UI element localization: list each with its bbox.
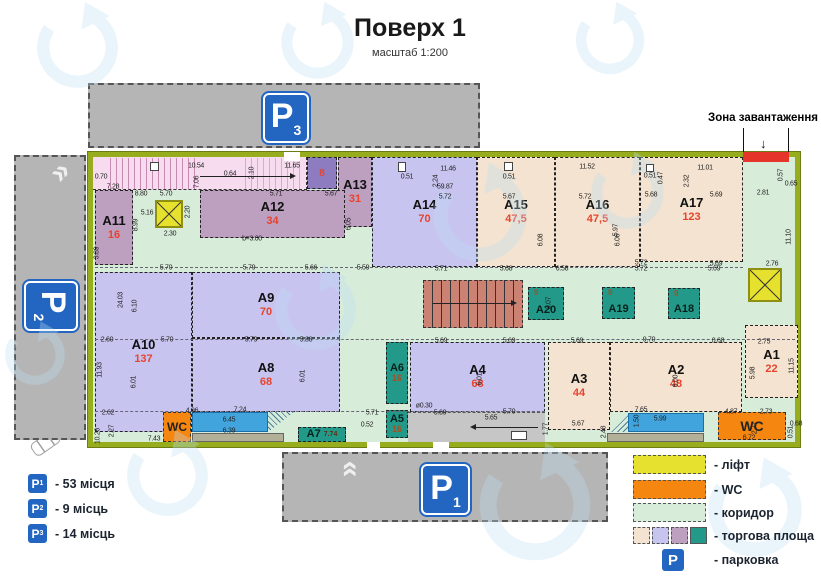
unit-a9: A970: [192, 272, 340, 338]
walkway-left: [192, 433, 284, 442]
dimension-label: 2.73: [760, 409, 772, 416]
unit-a11: A1116: [95, 190, 133, 265]
unit-a5: A516: [386, 410, 408, 438]
unit-a10: A10137: [95, 272, 192, 432]
dimension-label: 2.81: [757, 190, 769, 197]
unit-a18: 9A18: [668, 288, 700, 319]
legend-label-wc: - WC: [714, 483, 742, 497]
dimension-label: 7.43: [148, 436, 160, 443]
dimension-label: 3.07: [546, 297, 553, 309]
wc-left: WC: [163, 412, 191, 442]
dimension-label: 6.05: [346, 218, 353, 230]
dimension-label: 5.71: [366, 410, 378, 417]
dimension-label: 7.65: [635, 407, 647, 414]
scale-label: масштаб 1:200: [250, 47, 570, 59]
dimension-label: 6.45: [223, 417, 235, 424]
dimension-label: 4.96: [186, 408, 198, 415]
stairs-arrow: [433, 303, 511, 304]
dimension-label: 3.89: [94, 247, 101, 259]
dimension-label: 7.24: [234, 407, 246, 414]
unit-a6: A616: [386, 342, 408, 404]
dimension-label: 0.51: [401, 174, 413, 181]
dimension-label: 6.10: [132, 300, 139, 312]
dimension-label: 8.80: [135, 191, 147, 198]
dimension-label: 10.54: [188, 163, 204, 170]
wall-gap: [367, 442, 380, 450]
legend-swatch-retail-mauve: [671, 527, 688, 544]
dimension-label: 2.27: [109, 425, 116, 437]
legend-parking-icon: P: [662, 549, 684, 571]
legend-label-retail: - торгова площа: [714, 529, 814, 543]
p3-legend-icon: P3: [28, 524, 47, 543]
p2-legend-icon: P2: [28, 499, 47, 518]
dimension-label: 5.70: [161, 337, 173, 344]
dimension-label: 8.99: [133, 219, 140, 231]
dimension-label: 5.68: [500, 266, 512, 273]
dimension-label: 5.71: [435, 266, 447, 273]
dimension-label: 5.79: [243, 265, 255, 272]
loading-zone-guide: [743, 128, 744, 152]
dimension-label: 5.72: [579, 194, 591, 201]
dimension-label: 0.51: [788, 426, 795, 438]
dimension-label: 2.62: [102, 410, 114, 417]
wall-gap: [433, 442, 449, 450]
watermark-logo-icon: [30, 0, 125, 95]
dimension-label: 0.57: [778, 169, 785, 181]
dimension-label: 4.87: [725, 409, 737, 416]
arrow-head: [290, 173, 296, 179]
legend-swatch-retail-beige: [633, 527, 650, 544]
p1-legend-icon: P1: [28, 474, 47, 493]
legend-swatch-retail-lavender: [652, 527, 669, 544]
dimension-label: 2.20: [185, 206, 192, 218]
dimension-label: 5.69: [710, 192, 722, 199]
dimension-label: 2.48: [601, 426, 608, 438]
legend-label-corridor: - коридор: [714, 506, 774, 520]
legend-parking-p1: P1 - 53 місця: [28, 474, 115, 493]
p1-sign-icon: P1: [421, 464, 470, 515]
arrow-head: [470, 424, 476, 430]
dimension-label: 5.69: [503, 338, 515, 345]
dimension-label: 5.97: [613, 224, 620, 236]
legend-parking-p2: P2 - 9 місць: [28, 499, 108, 518]
dimension-label: 6.72: [743, 435, 755, 442]
dimension-label: 0.51: [503, 174, 515, 181]
door-mark: [398, 162, 406, 172]
down-arrow-icon: ↓: [760, 136, 767, 151]
dimension-label: 11.46: [440, 166, 456, 173]
dimension-label: 7.28: [107, 184, 119, 191]
dimension-label: 0.68: [712, 338, 724, 345]
dimension-label: 6.01: [300, 370, 307, 382]
dimension-label: 5.70: [160, 191, 172, 198]
dimension-label: 5.59: [357, 265, 369, 272]
legend-label-lift: - ліфт: [714, 458, 750, 472]
loading-zone-guide: [788, 128, 789, 152]
dimension-label: 5.65: [485, 415, 497, 422]
legend-swatch-lift: [633, 455, 706, 474]
legend-label-parking: - парковка: [714, 553, 778, 567]
dimension-label: 2.77: [752, 422, 759, 434]
dimension-arrow: [200, 176, 290, 177]
page-title: Поверх 1: [250, 14, 570, 43]
dimension-label: 6.01: [131, 376, 138, 388]
dimension-label: 0.51: [644, 173, 656, 180]
unit-a16: A1647,5: [555, 157, 640, 267]
dimension-label: 5.98: [750, 367, 757, 379]
dimension-label: 5.88: [300, 337, 312, 344]
dimension-label: ø0.30: [416, 403, 432, 410]
direction-chevron-icon: »: [338, 461, 358, 478]
dimension-label: 2.75: [758, 339, 770, 346]
dimension-label: 2.60: [101, 337, 113, 344]
dimension-label: 7.06: [194, 176, 201, 188]
door-mark: [511, 431, 527, 440]
dimension-label: 1.50: [634, 415, 641, 427]
dimension-label: 5.69: [571, 338, 583, 345]
dimension-label: 11.93: [97, 362, 104, 378]
dimension-label: 24.03: [118, 292, 125, 308]
dimension-label: 5.16: [141, 210, 153, 217]
elevator-right: [748, 268, 782, 302]
dimension-label: 10.26: [95, 428, 102, 444]
dimension-label: 0.52: [361, 422, 373, 429]
dimension-label: 11.15: [789, 358, 796, 374]
unit-a15: A1547,5: [477, 157, 555, 267]
dimension-label: 6.00: [673, 375, 680, 387]
dimension-label: 11.10: [786, 229, 793, 245]
legend-swatch-corridor: [633, 503, 706, 522]
door-mark: [504, 162, 513, 171]
dimension-label: 5.99: [654, 416, 666, 423]
unit-a7: A77.74: [298, 427, 346, 442]
unit-a19: 9A19: [602, 287, 635, 319]
dimension-label: 0.47: [658, 172, 665, 184]
stairs-block: [423, 280, 523, 328]
dimension-label: 11.65: [284, 163, 300, 170]
dimension-label: 5.67: [503, 194, 515, 201]
dimension-label: 2.32: [684, 175, 691, 187]
door-mark: [646, 164, 654, 172]
dimension-label: 6.08: [538, 234, 545, 246]
loading-zone-label: Зона завантаження: [705, 112, 821, 125]
dimension-label: 5.69: [435, 338, 447, 345]
legend-parking-p3: P3 - 14 місць: [28, 524, 115, 543]
legend-swatch-retail-teal: [690, 527, 707, 544]
dimension-label: 5.72: [635, 266, 647, 273]
dimension-label: 5.70: [503, 409, 515, 416]
dimension-label: 5.69: [434, 410, 446, 417]
dimension-label: 5.69: [710, 261, 722, 268]
dimension-label: 5.67: [325, 191, 337, 198]
dimension-label: 5.79: [245, 337, 257, 344]
walkway-right: [607, 433, 704, 442]
dimension-label: 5.72: [635, 260, 647, 267]
dimension-label: 1.77: [543, 423, 550, 435]
dimension-label: 5.71: [270, 191, 282, 198]
dimension-label: 5.66: [305, 265, 317, 272]
dimension-label: 6.58: [556, 266, 568, 273]
wall-gap: [284, 152, 300, 161]
dimension-label: 11.52: [579, 164, 595, 171]
dimension-label: 6.39: [223, 428, 235, 435]
dimension-label: 0.64: [224, 171, 236, 178]
unit-a3: A344: [548, 342, 610, 430]
unit-8: 8: [307, 157, 337, 189]
elevator-left: [155, 200, 183, 228]
legend-swatch-wc: [633, 480, 706, 499]
dimension-label: b=3.00: [242, 236, 262, 243]
dimension-label: 2.30: [164, 231, 176, 238]
unit-a8: A868: [192, 338, 340, 412]
dimension-label: 2.10: [249, 167, 256, 179]
unit-a14: A1470: [372, 157, 477, 267]
loading-zone-strip: [743, 152, 789, 162]
dimension-label: 5.70: [160, 265, 172, 272]
floor-plan-page: Поверх 1 масштаб 1:200 P3 » P2 » P1 8 A1…: [0, 0, 821, 580]
dimension-label: 11.01: [697, 165, 713, 172]
p3-sign-icon: P3: [263, 93, 309, 143]
dimension-label: 2.76: [766, 261, 778, 268]
door-mark: [150, 162, 159, 171]
dimension-label: 0.70: [95, 174, 107, 181]
stairs-arrow: [474, 427, 538, 428]
dimension-label: 5.68: [645, 192, 657, 199]
dimension-label: 9.70: [643, 337, 655, 344]
dimension-label: 59.87: [437, 184, 453, 191]
p2-sign-icon: P2: [24, 281, 78, 331]
dimension-label: 5.72: [439, 194, 451, 201]
dimension-label: 0.68: [790, 421, 802, 428]
dimension-label: 5.67: [572, 421, 584, 428]
dimension-label: 6.01: [477, 373, 484, 385]
arrow-head: [511, 300, 517, 306]
dimension-label: 0.65: [785, 181, 797, 188]
watermark-logo-icon: [570, 0, 650, 80]
